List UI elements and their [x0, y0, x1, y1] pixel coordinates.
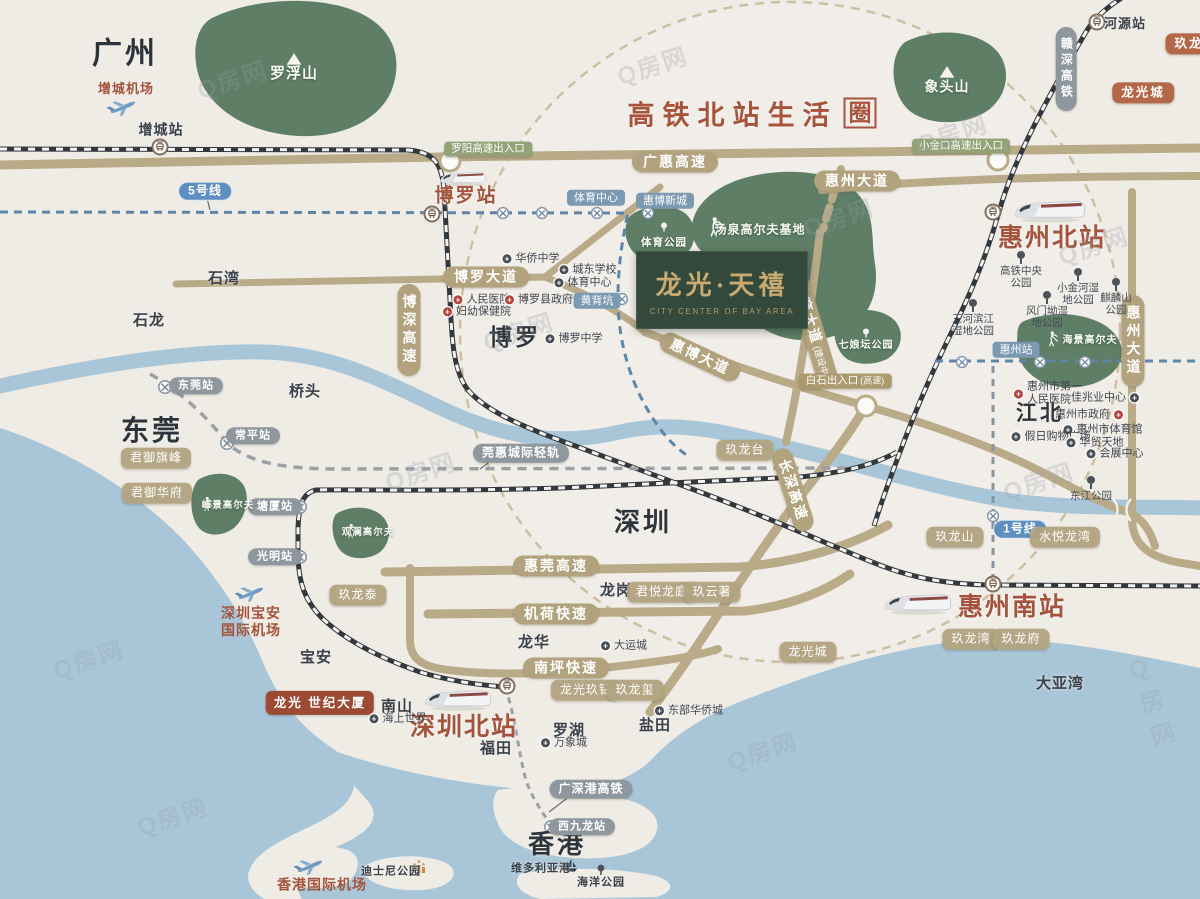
- park-dongjiang: 东江公园: [1070, 476, 1112, 502]
- poi-victoria-harbour: 维多利亚港: [511, 862, 571, 875]
- poi-dot-icon: [1067, 439, 1076, 448]
- poi-dayuncheng: 大运城: [601, 639, 647, 652]
- rail-station-icon: [153, 140, 168, 155]
- metro-stop-icon: [1080, 357, 1091, 368]
- project-jiulongshan: 玖龙山: [926, 527, 983, 548]
- project-jiulongtai: 玖龙台: [716, 440, 773, 461]
- poi-oct-east: 东部华侨城: [655, 704, 723, 717]
- project-jiulongfu: 玖龙府: [992, 629, 1049, 650]
- district-yantian: 盐田: [639, 717, 671, 735]
- poi-ocean-park: 海洋公园: [577, 876, 625, 889]
- poi-dot-icon: [505, 296, 514, 305]
- station-heyuan: 河源站: [1104, 16, 1146, 32]
- rail-station-icon: [986, 205, 1001, 220]
- golf-haijing: 海景高尔夫: [1063, 335, 1118, 347]
- poi-text: 大运城: [614, 639, 647, 652]
- city-guangzhou: 广州: [92, 37, 158, 74]
- park-qiniangtan: 七娘坛公园: [839, 340, 894, 352]
- poi-dot-icon: [503, 255, 512, 264]
- rail-station-icon: [986, 577, 1001, 592]
- poi-fuyou-hospital: 妇幼保健院: [443, 305, 511, 318]
- poi-sea-world: 海上世界: [370, 712, 427, 725]
- page-title: 高铁北站生活圈: [628, 94, 877, 133]
- district-futian: 福田: [480, 740, 512, 758]
- poi-boluo-school: 博罗中学: [546, 332, 603, 345]
- poi-disney-park: 迪士尼公园: [361, 865, 421, 878]
- park-text: 风门坳湿地公园: [1024, 305, 1070, 329]
- project-century-tower: 龙光 世纪大厦: [266, 691, 374, 715]
- golf-guanlan: 观澜高尔夫: [342, 527, 395, 539]
- park-text: 高铁中央公园: [997, 265, 1045, 289]
- rail-station-icon: [500, 679, 515, 694]
- airport-zengcheng: 增城机场: [98, 81, 154, 97]
- metro-stop-icon: [592, 208, 603, 219]
- city-shenzhen: 深圳: [614, 507, 672, 539]
- town-shilong: 石龙: [133, 312, 165, 330]
- bay-area-location-map: 高铁北站生活圈 龙光·天禧 CITY CENTER OF BAY AREA 广州…: [0, 0, 1200, 899]
- title-text: 高铁北站生活: [628, 94, 838, 133]
- park-sports: 体育公园: [641, 237, 687, 250]
- rail-station-icon: [425, 207, 440, 222]
- station-dongguan: 东莞站: [169, 377, 223, 394]
- station-boluo: 博罗站: [434, 184, 497, 207]
- airport-baoan: 深圳宝安 国际机场: [221, 605, 281, 639]
- road-guanghui-expressway: 广惠高速: [632, 151, 718, 172]
- airport-hongkong: 香港国际机场: [277, 876, 367, 893]
- tree-icon: [1042, 291, 1052, 304]
- poi-mixc: 万象城: [541, 736, 587, 749]
- poi-text: 城东学校: [573, 263, 617, 276]
- road-nanping-expressway: 南坪快速: [523, 657, 609, 678]
- mountain-luofushan: 罗浮山: [270, 65, 318, 83]
- poi-text: 东部华侨城: [668, 704, 723, 717]
- city-boluo: 博罗: [489, 323, 541, 351]
- metro-huibo-newtown: 惠博新城: [636, 193, 694, 209]
- road-boluo-avenue: 博罗大道: [443, 266, 529, 287]
- station-huizhou-north: 惠州北站: [998, 223, 1106, 254]
- station-huizhou-south: 惠州南站: [958, 592, 1066, 623]
- park-sanhe-binjiang: 三河滨江湿地公园: [949, 299, 997, 337]
- rail-ganshen-hsr: 赣深高铁: [1056, 27, 1077, 111]
- poi-huaqiao-school: 华侨中学: [503, 252, 560, 265]
- metro-stop-icon: [643, 208, 654, 219]
- poi-text: 体育中心: [568, 276, 612, 289]
- bay-dayawan: 大亚湾: [1036, 675, 1084, 693]
- poi-dot-icon: [541, 739, 550, 748]
- junction-icon: [856, 396, 876, 416]
- project-junyu-huafu: 君御华府: [122, 483, 192, 504]
- tree-icon: [1111, 278, 1121, 291]
- project-logo-subtitle: CITY CENTER OF BAY AREA: [650, 307, 794, 316]
- poi-dot-icon: [546, 335, 555, 344]
- metro-stop-icon: [537, 208, 548, 219]
- label-text: 白石出入口: [806, 375, 859, 387]
- poi-dot-icon: [655, 707, 664, 716]
- exit-luoyang: 罗阳高速出入口: [444, 142, 532, 157]
- park-fengmenao: 风门坳湿地公园: [1024, 291, 1070, 329]
- poi-dot-icon: [1130, 394, 1139, 403]
- poi-boluo-gov: 博罗县政府: [505, 293, 573, 306]
- project-jiuyunzhu: 玖云著: [683, 582, 740, 603]
- town-shiwan: 石湾: [208, 270, 240, 288]
- poi-convention-center: 会展中心: [1087, 447, 1144, 460]
- project-longguangcheng-north: 龙光城: [1112, 82, 1174, 103]
- poi-text: 惠州市政府: [1055, 408, 1110, 421]
- green-qiniangtan: [834, 310, 900, 364]
- metro-huangbeikeng: 黄背坑: [574, 293, 621, 309]
- poi-text: 万象城: [554, 736, 587, 749]
- poi-dot-icon: [1012, 433, 1021, 442]
- metro-stop-icon: [1035, 357, 1046, 368]
- project-jiulongxi: 玖龙玺: [606, 680, 663, 701]
- park-text: 东江公园: [1070, 490, 1112, 502]
- road-huiguan-expressway: 惠莞高速: [513, 555, 599, 576]
- project-junyu-qifeng: 君御旗峰: [121, 448, 191, 469]
- exit-xiaojinkou: 小金口高速出入口: [912, 139, 1010, 154]
- town-qiaotou: 桥头: [289, 383, 321, 401]
- poi-sports-center: 体育中心: [555, 276, 612, 289]
- poi-text: 华侨中学: [516, 252, 560, 265]
- metro-tiyu-center: 体育中心: [567, 190, 625, 206]
- park-text: 麒麟山公园: [1098, 292, 1134, 316]
- poi-dot-icon: [555, 279, 564, 288]
- project-jiulong-clipped: 玖龙: [1165, 33, 1200, 54]
- poi-text: 海上世界: [383, 712, 427, 725]
- golf-fengjing: 峰景高尔夫: [202, 500, 255, 512]
- poi-dot-icon: [443, 308, 452, 317]
- exit-baishi: 白石出入口(高速): [799, 374, 892, 389]
- title-seal: 圈: [844, 97, 877, 129]
- project-logo: 龙光·天禧 CITY CENTER OF BAY AREA: [636, 251, 808, 329]
- project-jiulongwan: 玖龙湾: [942, 629, 999, 650]
- station-west-kowloon: 西九龙站: [549, 818, 615, 835]
- poi-huizhou-gov: 惠州市政府: [1055, 408, 1123, 421]
- district-longhua: 龙华: [518, 634, 550, 652]
- park-qilinshan: 麒麟山公园: [1098, 278, 1134, 316]
- road-huizhou-avenue: 惠州大道: [814, 170, 900, 191]
- park-hsr-central: 高铁中央公园: [997, 251, 1045, 289]
- rail-station-icon: [1090, 15, 1105, 30]
- metro-stop-icon: [498, 208, 509, 219]
- metro-line5-badge: 5号线: [178, 182, 232, 201]
- city-dongguan: 东莞: [121, 414, 183, 448]
- poi-dot-icon: [1087, 450, 1096, 459]
- poi-text: 博罗县政府: [518, 293, 573, 306]
- poi-text: 会展中心: [1100, 447, 1144, 460]
- station-changping: 常平站: [226, 427, 280, 444]
- rail-guangshengang-hsr: 广深港高铁: [549, 780, 632, 799]
- poi-kaisa-center: 佳兆业中心: [1071, 391, 1139, 404]
- tree-icon: [1073, 268, 1083, 281]
- station-zengcheng: 增城站: [139, 121, 184, 138]
- project-shuiyue-longwan: 水悦龙湾: [1030, 527, 1100, 548]
- poi-dot-icon: [1114, 411, 1123, 420]
- tree-icon: [1086, 476, 1096, 489]
- project-longguangcheng-south: 龙光城: [779, 642, 836, 663]
- district-baoan: 宝安: [300, 649, 332, 667]
- project-logo-name: 龙光·天禧: [656, 265, 789, 302]
- road-jihe-expressway: 机荷快速: [513, 603, 599, 624]
- poi-chengdong-school: 城东学校: [560, 263, 617, 276]
- rail-guanhui-intercity: 莞惠城际轻轨: [473, 444, 569, 463]
- tree-icon: [968, 299, 978, 312]
- poi-dot-icon: [601, 642, 610, 651]
- poi-dot-icon: [370, 715, 379, 724]
- station-tangxia: 塘厦站: [248, 498, 302, 515]
- poi-text: 妇幼保健院: [456, 305, 511, 318]
- station-guangming: 光明站: [248, 548, 302, 565]
- tree-icon: [1016, 251, 1026, 264]
- metro-huizhou-station: 惠州站: [993, 342, 1040, 358]
- metro-stop-icon: [988, 511, 999, 522]
- poi-dot-icon: [560, 266, 569, 275]
- poi-text: 博罗中学: [559, 332, 603, 345]
- poi-dot-icon: [454, 296, 463, 305]
- poi-dot-icon: [1014, 390, 1023, 399]
- road-boshen-expressway: 博深高速: [397, 284, 420, 376]
- label-subtext: (高速): [860, 376, 884, 386]
- golf-tangquan: 汤泉高尔夫基地: [714, 223, 805, 238]
- mountain-xiangtoushan: 象头山: [925, 78, 970, 95]
- project-jiulongtai-sz: 玖龙泰: [329, 585, 386, 606]
- metro-stop-icon: [957, 357, 968, 368]
- poi-text: 佳兆业中心: [1071, 391, 1126, 404]
- park-text: 三河滨江湿地公园: [949, 313, 997, 337]
